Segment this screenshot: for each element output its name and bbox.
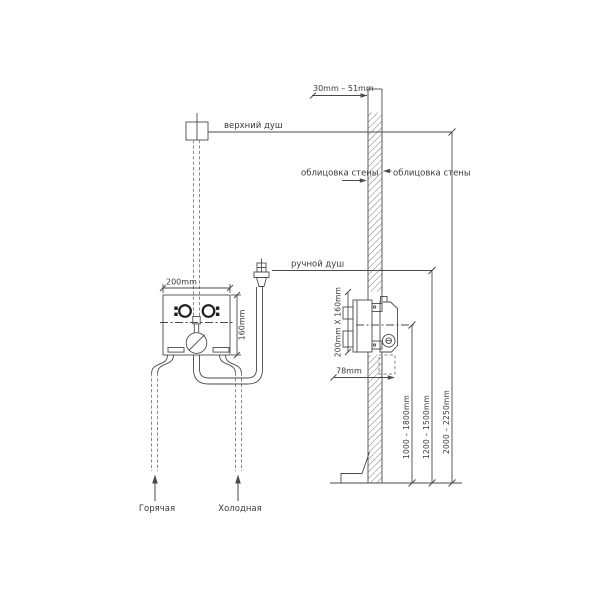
top-shower-label: верхний душ xyxy=(224,121,283,131)
wall-cladding-left-label: облицовка стены xyxy=(301,169,379,179)
mounting-bracket-right xyxy=(213,348,229,353)
wall-cladding-right-callout: облицовка стены xyxy=(383,169,471,179)
wall-cladding-right-label: облицовка стены xyxy=(393,169,471,179)
mixer-box xyxy=(160,295,233,355)
trim-plate xyxy=(380,302,398,352)
hot-supply-label: Горячая xyxy=(139,504,175,514)
dim-mixer-height-text: 1000 – 1800mm xyxy=(402,395,411,459)
shower-installation-diagram: верхний душ xyxy=(0,0,600,600)
handle-knob-icon xyxy=(382,334,395,347)
cold-supply-pipe xyxy=(220,355,242,471)
mounting-bracket-left xyxy=(168,348,184,353)
dim-wall-thickness-text: 30mm – 51mm xyxy=(313,84,374,93)
diverter-icon xyxy=(186,333,207,354)
cold-supply-callout: Холодная xyxy=(218,475,261,515)
hot-supply-callout: Горячая xyxy=(139,475,175,515)
dim-body-depth-text: 78mm xyxy=(336,367,362,376)
right-arrow-icon xyxy=(360,178,367,182)
wall-section-view: 30mm – 51mm облицовка стены облицовка ст… xyxy=(301,84,471,487)
wall-cladding-left-callout: облицовка стены xyxy=(301,169,379,183)
dim-box-width: 200mm xyxy=(160,278,233,294)
left-arrow-icon xyxy=(383,169,390,173)
hot-valve-icon xyxy=(179,305,191,317)
hand-shower-outlet-icon xyxy=(254,259,269,287)
up-arrow-icon xyxy=(235,475,241,484)
dim-hand-shower-height: 1200 – 1500mm xyxy=(422,267,436,487)
dim-box-height-text: 160mm xyxy=(238,309,247,340)
overhead-shower-icon xyxy=(186,113,208,140)
floor-step xyxy=(341,452,370,483)
dim-top-shower-height: 2000 – 2250mm xyxy=(442,129,456,487)
cold-supply-label: Холодная xyxy=(218,504,261,514)
dim-mixer-height: 1000 – 1800mm xyxy=(402,322,416,487)
dim-wall-thickness: 30mm – 51mm xyxy=(310,84,374,99)
wall xyxy=(368,89,382,483)
cold-valve-icon xyxy=(203,305,215,317)
hand-shower-label: ручной душ xyxy=(291,260,344,270)
dim-body-size: 200mm X 160mm xyxy=(334,287,352,357)
dim-body-size-text: 200mm X 160mm xyxy=(334,287,343,357)
dim-box-width-text: 200mm xyxy=(166,278,197,287)
dim-box-height: 160mm xyxy=(231,292,247,358)
dim-hand-shower-height-text: 1200 – 1500mm xyxy=(422,395,431,459)
riser-pipe xyxy=(194,140,200,317)
dim-top-shower-height-text: 2000 – 2250mm xyxy=(442,390,451,454)
up-arrow-icon xyxy=(152,475,158,484)
hot-supply-pipe xyxy=(152,355,174,471)
